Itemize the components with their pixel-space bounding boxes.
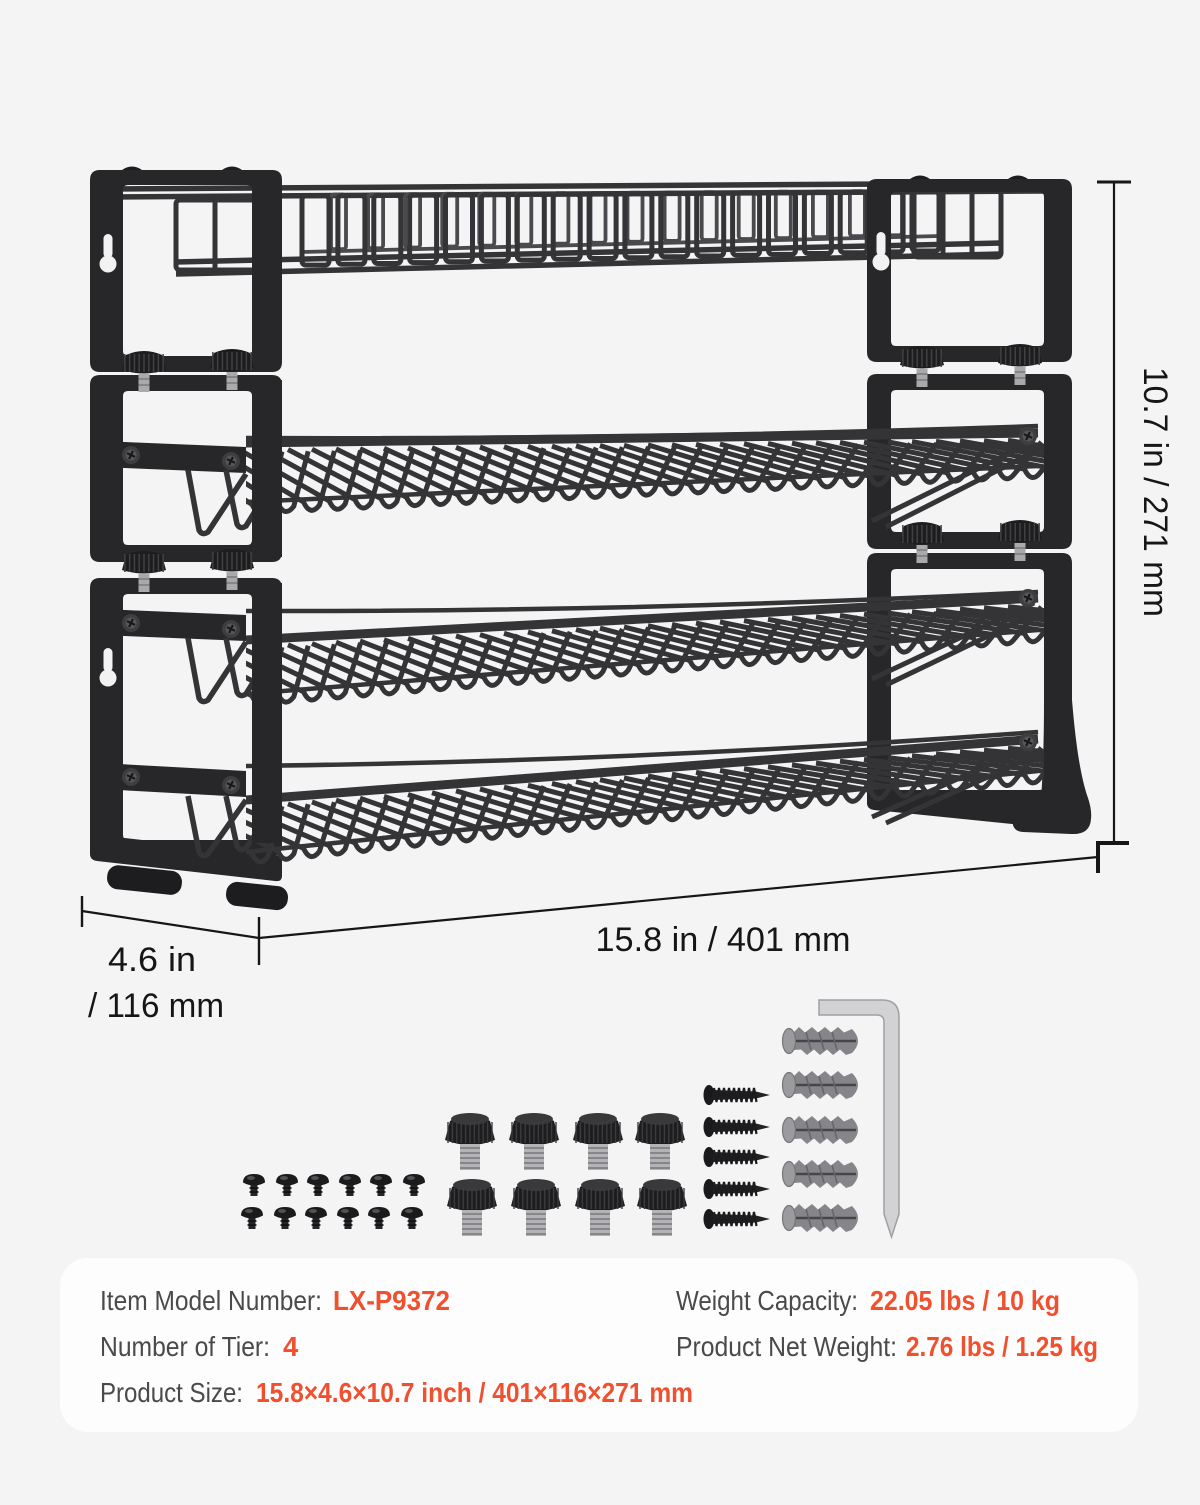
svg-text:Item Model Number:: Item Model Number: xyxy=(100,1285,322,1316)
svg-text:Product Net Weight:: Product Net Weight: xyxy=(676,1331,897,1362)
svg-text:Number of Tier:: Number of Tier: xyxy=(100,1331,270,1362)
svg-text:LX-P9372: LX-P9372 xyxy=(333,1285,450,1316)
svg-text:22.05 lbs / 10 kg: 22.05 lbs / 10 kg xyxy=(870,1285,1060,1316)
svg-text:15.8×4.6×10.7 inch / 401×116×2: 15.8×4.6×10.7 inch / 401×116×271 mm xyxy=(256,1377,693,1408)
svg-text:/ 116 mm: / 116 mm xyxy=(88,987,224,1025)
svg-text:2.76 lbs / 1.25 kg: 2.76 lbs / 1.25 kg xyxy=(906,1331,1098,1362)
svg-text:15.8 in / 401 mm: 15.8 in / 401 mm xyxy=(596,921,851,959)
svg-text:4: 4 xyxy=(283,1331,299,1362)
svg-text:10.7 in / 271 mm: 10.7 in / 271 mm xyxy=(1136,367,1174,617)
svg-text:Product Size:: Product Size: xyxy=(100,1377,243,1408)
svg-text:Weight Capacity:: Weight Capacity: xyxy=(676,1285,858,1316)
svg-text:4.6 in: 4.6 in xyxy=(108,941,196,979)
